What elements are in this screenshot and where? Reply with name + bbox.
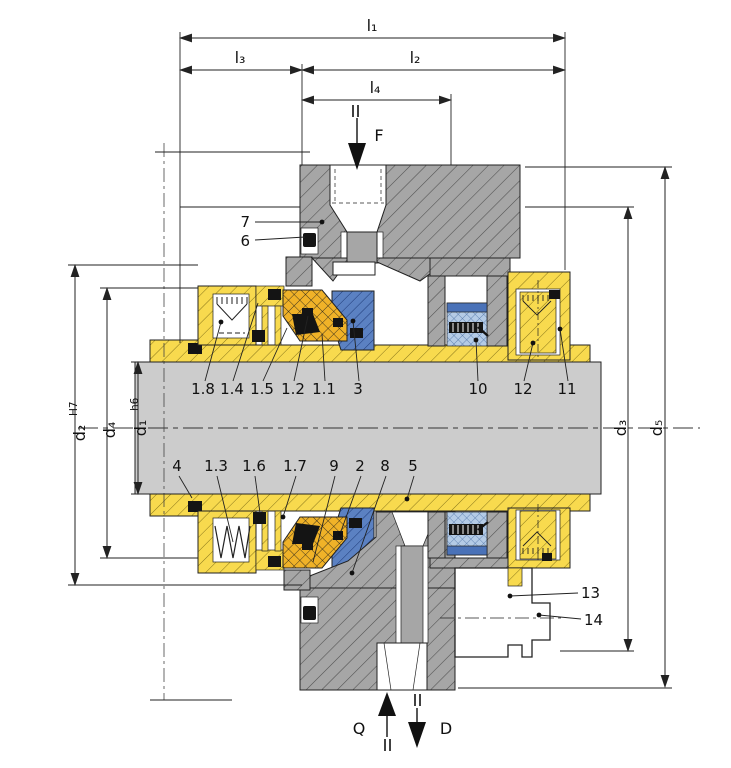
- lower-housing11-12: [508, 504, 570, 568]
- callout-1-2: 1.2: [281, 380, 305, 398]
- callout-6: 6: [240, 232, 250, 250]
- callout-13: 13: [581, 584, 600, 602]
- callout-1-3: 1.3: [204, 457, 228, 475]
- upper-housing11-12: [508, 272, 570, 360]
- callout-1-1: 1.1: [312, 380, 336, 398]
- callout-3: 3: [353, 380, 363, 398]
- oring-part6: [303, 233, 316, 247]
- callout-9: 9: [329, 457, 339, 475]
- adjusting-screw-rod-lower: [401, 546, 423, 643]
- dim-d2-tolerance: H7: [68, 401, 80, 416]
- adjusting-screw-rod: [347, 232, 377, 263]
- callout-4: 4: [172, 457, 182, 475]
- dim-l3-label: l₃: [235, 48, 246, 67]
- dim-d1-tolerance: h6: [129, 397, 141, 411]
- callout-1-5: 1.5: [250, 380, 274, 398]
- drive-screw-upper: [268, 289, 281, 300]
- technical-drawing-page: l₁ l₃ l₂ l₄ d₂ H7 d₄ d₁ h6 d₃ d₅ F Q D 7…: [0, 0, 731, 768]
- callout-2: 2: [355, 457, 365, 475]
- dim-d5-label: d₅: [647, 420, 666, 437]
- set-screw-11: [549, 290, 560, 299]
- dim-d4-label: d₄: [100, 422, 119, 439]
- callout-8: 8: [380, 457, 390, 475]
- thrust-foot: [333, 262, 375, 275]
- dim-l2-label: l₂: [410, 48, 421, 67]
- drive-screw-lower: [268, 556, 281, 567]
- seal-cross-section-drawing: l₁ l₃ l₂ l₄ d₂ H7 d₄ d₁ h6 d₃ d₅ F Q D 7…: [0, 0, 731, 768]
- screw-bore-lower: [377, 643, 427, 690]
- dim-l1-label: l₁: [367, 16, 378, 35]
- sleeve-oring-lower-part4: [188, 501, 202, 512]
- callout-7: 7: [240, 213, 250, 231]
- lower-bracket: [428, 512, 510, 568]
- force-label: F: [374, 126, 383, 145]
- callout-1-7: 1.7: [283, 457, 307, 475]
- oring-lower: [303, 606, 316, 620]
- dim-l4-label: l₄: [370, 78, 381, 97]
- callout-12: 12: [513, 380, 532, 398]
- svg-text:d₂: d₂: [70, 425, 89, 442]
- drain-label: D: [440, 719, 452, 738]
- callout-1-4: 1.4: [220, 380, 244, 398]
- svg-text:d₁: d₁: [131, 420, 150, 437]
- callout-5: 5: [408, 457, 418, 475]
- callout-10: 10: [468, 380, 487, 398]
- dim-d3-label: d₃: [611, 420, 630, 437]
- callout-1-8: 1.8: [191, 380, 215, 398]
- oring-part1-6: [253, 512, 266, 524]
- callout-1-6: 1.6: [242, 457, 266, 475]
- callout-11: 11: [557, 380, 576, 398]
- quench-label: Q: [353, 719, 366, 738]
- callout-14: 14: [584, 611, 603, 629]
